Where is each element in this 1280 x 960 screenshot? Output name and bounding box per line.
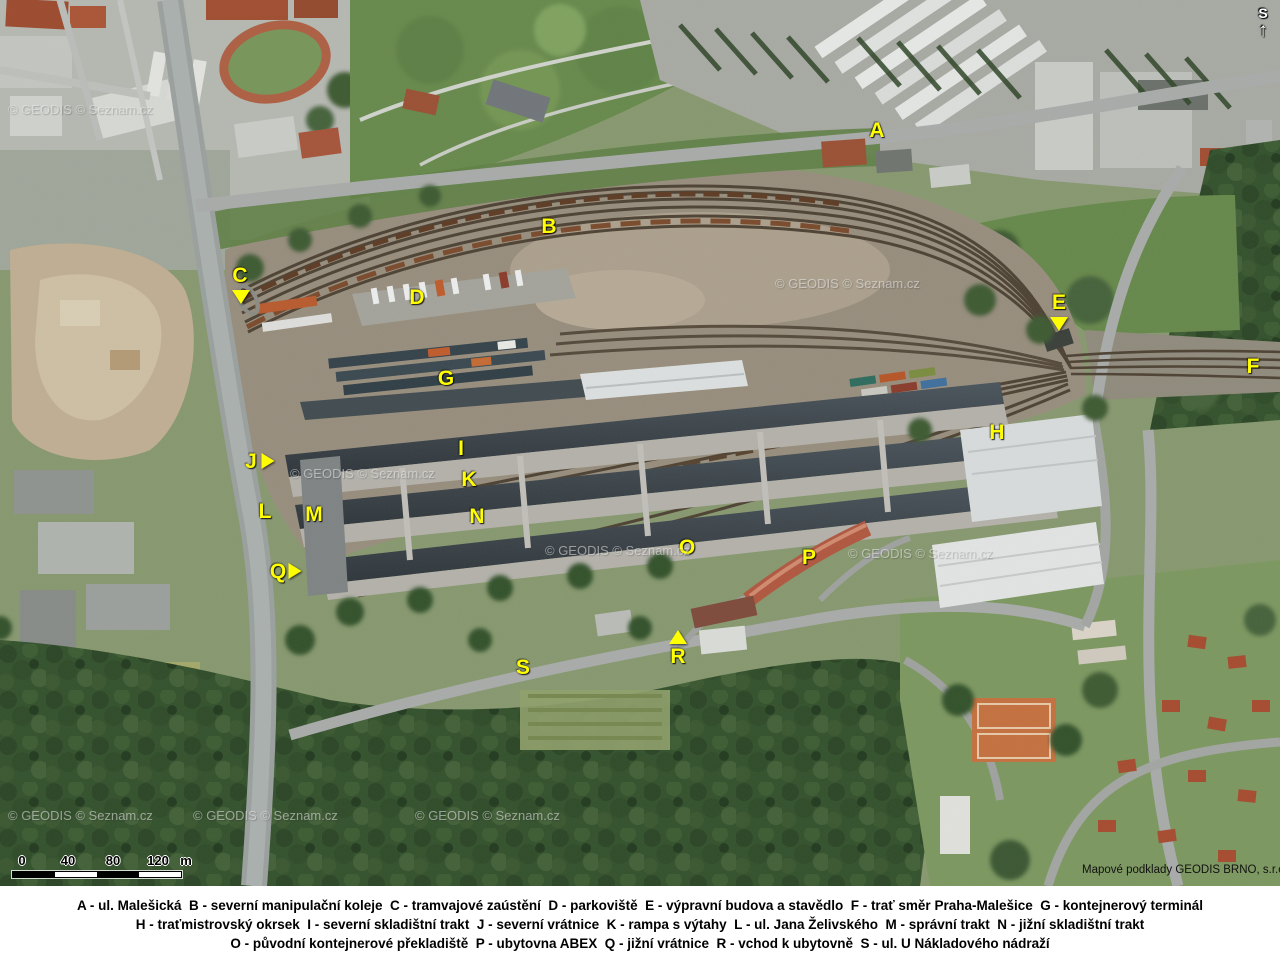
watermark-6: © GEODIS © Seznam.cz — [193, 808, 338, 823]
scale-bar: 04080120m — [10, 853, 210, 881]
watermark-4: © GEODIS © Seznam.cz — [848, 546, 993, 561]
map-label-Q: Q — [270, 561, 286, 582]
map-label-B: B — [541, 216, 556, 237]
scale-tick-40: 40 — [61, 853, 75, 868]
scale-tick-80: 80 — [106, 853, 120, 868]
north-letter: S — [1258, 5, 1267, 21]
map-label-A: A — [869, 120, 884, 141]
map-credit: Mapové podklady GEODIS BRNO, s.r.o. — [1082, 864, 1280, 876]
marker-right-icon-J — [262, 453, 275, 469]
map-label-P: P — [802, 547, 816, 568]
map-label-K: K — [461, 469, 476, 490]
map-label-D: D — [409, 287, 424, 308]
watermark-1: © GEODIS © Seznam.cz — [775, 276, 920, 291]
north-indicator: S ↑ — [1256, 6, 1270, 40]
screenshot: ABCDEFGHIJKLMNOPQRS© GEODIS © Seznam.cz©… — [0, 0, 1280, 960]
legend-line-1: A - ul. Malešická B - severní manipulačn… — [77, 896, 1203, 915]
legend-caption: A - ul. Malešická B - severní manipulačn… — [0, 886, 1280, 960]
map-label-C: C — [232, 265, 247, 286]
scale-tick-0: 0 — [18, 853, 25, 868]
watermark-7: © GEODIS © Seznam.cz — [415, 808, 560, 823]
marker-down-icon-E — [1050, 317, 1068, 331]
map-label-G: G — [438, 368, 454, 389]
marker-down-icon-C — [232, 290, 250, 304]
label-layer: ABCDEFGHIJKLMNOPQRS© GEODIS © Seznam.cz©… — [0, 0, 1280, 886]
marker-up-icon-R — [669, 630, 687, 644]
map-label-H: H — [989, 422, 1004, 443]
legend-line-2: H - traťmistrovský okrsek I - severní sk… — [136, 915, 1145, 934]
map-label-M: M — [305, 504, 323, 525]
map-label-I: I — [458, 438, 464, 459]
scale-bar-segments — [12, 871, 182, 878]
legend-line-3: O - původní kontejnerové překladiště P -… — [230, 934, 1049, 953]
watermark-5: © GEODIS © Seznam.cz — [8, 808, 153, 823]
scale-unit: m — [180, 853, 192, 868]
map-label-F: F — [1247, 356, 1260, 377]
map-label-S: S — [516, 657, 530, 678]
aerial-map: ABCDEFGHIJKLMNOPQRS© GEODIS © Seznam.cz©… — [0, 0, 1280, 886]
map-label-N: N — [469, 506, 484, 527]
watermark-2: © GEODIS © Seznam.cz — [290, 466, 435, 481]
marker-right-icon-Q — [289, 563, 302, 579]
map-label-L: L — [259, 501, 272, 522]
scale-tick-120: 120 — [147, 853, 169, 868]
north-arrow-icon: ↑ — [1256, 21, 1270, 40]
map-label-R: R — [670, 646, 685, 667]
map-label-J: J — [245, 451, 257, 472]
map-label-E: E — [1052, 292, 1066, 313]
watermark-3: © GEODIS © Seznam.cz — [545, 543, 690, 558]
watermark-0: © GEODIS © Seznam.cz — [8, 102, 153, 117]
